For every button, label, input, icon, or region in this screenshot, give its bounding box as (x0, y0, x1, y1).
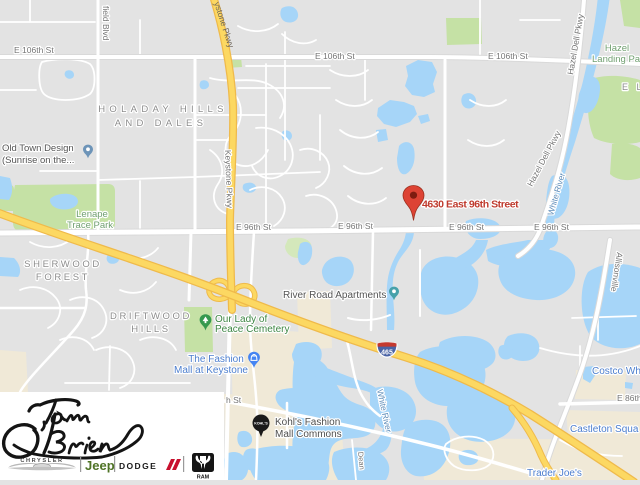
svg-text:The Fashion: The Fashion (188, 354, 244, 365)
svg-text:Mall at Keystone: Mall at Keystone (174, 365, 248, 376)
svg-text:SHERWOOD: SHERWOOD (24, 259, 102, 270)
svg-text:E 96th St: E 96th St (534, 222, 570, 232)
svg-text:Castleton Squa: Castleton Squa (570, 424, 639, 435)
svg-text:Trace Park: Trace Park (67, 220, 113, 231)
svg-text:Trader Joe's: Trader Joe's (527, 468, 582, 479)
svg-text:Peace Cemetery: Peace Cemetery (215, 324, 289, 335)
svg-text:field Blvd: field Blvd (101, 6, 111, 41)
svg-text:4630 East 96th Street: 4630 East 96th Street (422, 199, 519, 211)
svg-text:DODGE: DODGE (119, 461, 157, 471)
svg-text:E 106th St: E 106th St (488, 51, 528, 61)
svg-text:E L: E L (622, 82, 640, 92)
svg-text:(Sunrise on the...: (Sunrise on the... (2, 155, 74, 166)
svg-text:465: 465 (381, 350, 393, 357)
svg-text:Kohl's Fashion: Kohl's Fashion (275, 417, 340, 428)
svg-text:DRIFTWOOD: DRIFTWOOD (110, 311, 192, 322)
svg-text:E 106th St: E 106th St (315, 51, 355, 61)
svg-text:HILLS: HILLS (131, 324, 170, 335)
svg-text:h St: h St (226, 395, 242, 405)
svg-text:KOHL'S: KOHL'S (254, 422, 268, 426)
svg-text:Landing Park: Landing Park (592, 54, 640, 65)
svg-text:Mall Commons: Mall Commons (275, 429, 342, 440)
svg-text:E 96th St: E 96th St (236, 222, 272, 232)
svg-text:Keystone Pkwy: Keystone Pkwy (223, 150, 235, 209)
svg-text:Costco Wh: Costco Wh (592, 366, 640, 377)
svg-text:River Road Apartments: River Road Apartments (283, 290, 386, 301)
svg-text:AND DALES: AND DALES (115, 118, 208, 129)
svg-text:E 86th S: E 86th S (617, 393, 640, 403)
svg-text:RAM: RAM (197, 475, 210, 481)
svg-text:Lenape: Lenape (76, 209, 108, 220)
svg-text:FOREST: FOREST (36, 272, 90, 283)
svg-text:Old Town Design: Old Town Design (2, 143, 74, 154)
svg-text:Dean: Dean (356, 451, 367, 470)
svg-text:Jeep: Jeep (85, 458, 115, 473)
svg-text:E 96th St: E 96th St (449, 222, 485, 232)
svg-text:E 106th St: E 106th St (14, 45, 54, 55)
svg-text:E 96th St: E 96th St (338, 221, 374, 231)
svg-text:Hazel: Hazel (605, 43, 629, 54)
svg-text:HOLADAY HILLS: HOLADAY HILLS (98, 104, 227, 115)
